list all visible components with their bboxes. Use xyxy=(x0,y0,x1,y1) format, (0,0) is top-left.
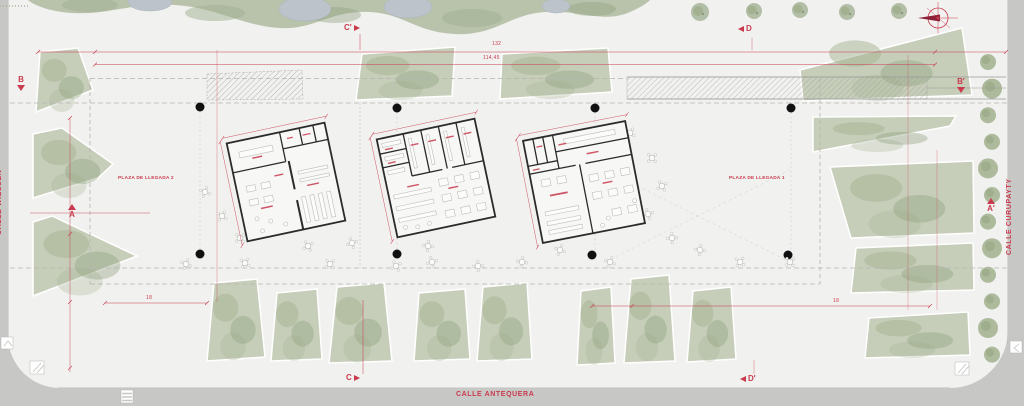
plaza-label-1: PLAZA DE LLEGADA 1 xyxy=(729,177,785,182)
section-marker-label: C xyxy=(346,374,352,382)
section-marker-label: B xyxy=(18,76,24,84)
plan-drawing xyxy=(0,0,1024,406)
section-marker-a-left: A xyxy=(68,204,76,219)
tree-row xyxy=(691,2,907,21)
building-2 xyxy=(367,110,501,244)
site-plan-canvas: B B' A A' C' C D D' CALLE WIESSEN CALLE … xyxy=(0,0,1024,406)
building-1 xyxy=(217,114,351,248)
dimension-inner: 114,45 xyxy=(483,56,500,61)
section-marker-label: A' xyxy=(987,205,995,213)
section-marker-c-bottom: C xyxy=(346,374,360,382)
dimension-bay-left: 18 xyxy=(146,296,152,301)
section-arrow-left-icon xyxy=(740,376,746,382)
section-arrow-left-icon xyxy=(738,26,744,32)
section-arrow-down-icon xyxy=(17,85,25,91)
section-arrow-down-icon xyxy=(957,87,965,93)
section-marker-label: C' xyxy=(344,24,352,32)
section-marker-d-top: D xyxy=(738,25,752,33)
section-marker-b-right: B' xyxy=(957,78,965,93)
section-arrow-right-icon xyxy=(354,25,360,31)
street-label-calle-wiessen: CALLE WIESSEN xyxy=(0,170,3,235)
section-marker-label: B' xyxy=(957,78,965,86)
section-marker-c-top: C' xyxy=(344,24,360,32)
dimension-bay-right: 18 xyxy=(833,299,839,304)
section-marker-label: A xyxy=(69,211,75,219)
riverbank-vegetation xyxy=(0,0,650,34)
section-marker-b-left: B xyxy=(17,76,25,91)
street-label-calle-curupayty: CALLE CURUPAYTY xyxy=(1006,178,1013,255)
section-marker-label: D' xyxy=(748,375,756,383)
north-arrow-icon xyxy=(918,2,958,34)
dimension-overall: 132 xyxy=(492,42,501,47)
street-label-calle-antequera: CALLE ANTEQUERA xyxy=(456,391,534,398)
section-marker-label: D xyxy=(746,25,752,33)
plaza-label-2: PLAZA DE LLEGADA 2 xyxy=(118,177,174,182)
section-arrow-right-icon xyxy=(354,375,360,381)
section-marker-a-right: A' xyxy=(987,198,995,213)
section-marker-d-bottom: D' xyxy=(740,375,756,383)
